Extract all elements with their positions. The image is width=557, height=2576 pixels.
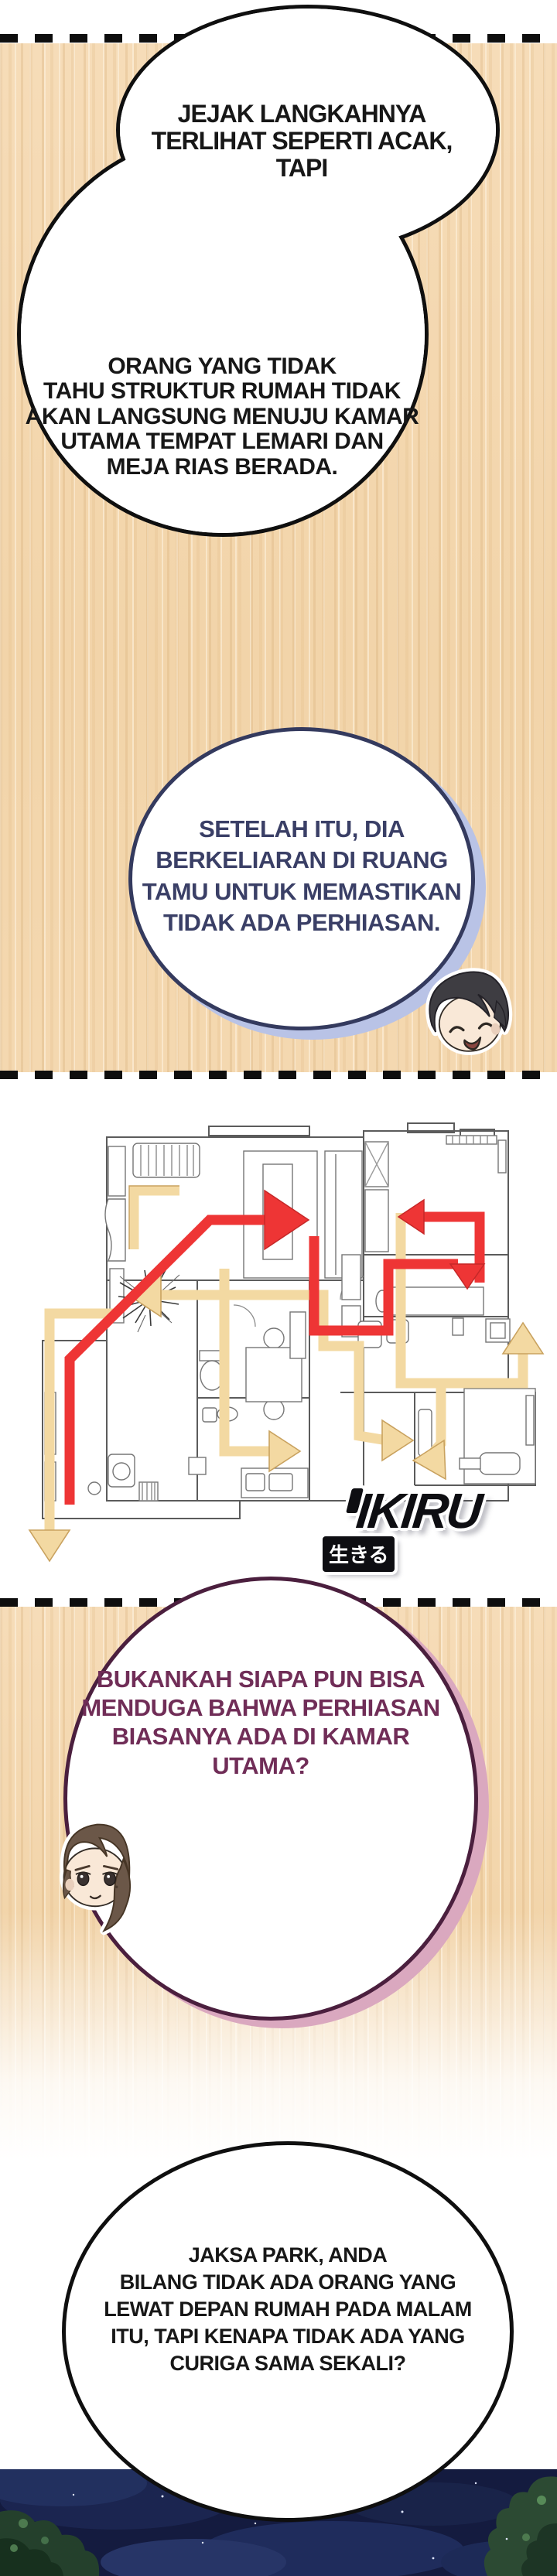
comic-page: JEJAK LANGKAHNYA TERLIHAT SEPERTI ACAK, …	[0, 0, 557, 2576]
dashed-panel-border-middle	[0, 1071, 557, 1079]
chibi-face-dark-haired-man	[410, 956, 524, 1071]
bubble-1-text: JEJAK LANGKAHNYA TERLIHAT SEPERTI ACAK, …	[108, 101, 495, 183]
bubble-2-text: ORANG YANG TIDAK TAHU STRUKTUR RUMAH TID…	[21, 354, 423, 480]
bubble-3-text: SETELAH ITU, DIA BERKELIARAN DI RUANG TA…	[116, 814, 487, 938]
bubble-4-text: BUKANKAH SIAPA PUN BISA MENDUGA BAHWA PE…	[67, 1665, 454, 1780]
speech-bubble-4	[63, 1577, 478, 2021]
ikiru-watermark: IKIRU 生きる	[321, 1487, 557, 1572]
bubble-5-text: JAKSA PARK, ANDA BILANG TIDAK ADA ORANG …	[63, 2242, 512, 2377]
ikiru-kanji-badge: 生きる	[323, 1536, 395, 1572]
ikiru-brand-text: IKIRU	[354, 1482, 483, 1539]
chibi-face-brown-haired-man	[37, 1807, 149, 1940]
